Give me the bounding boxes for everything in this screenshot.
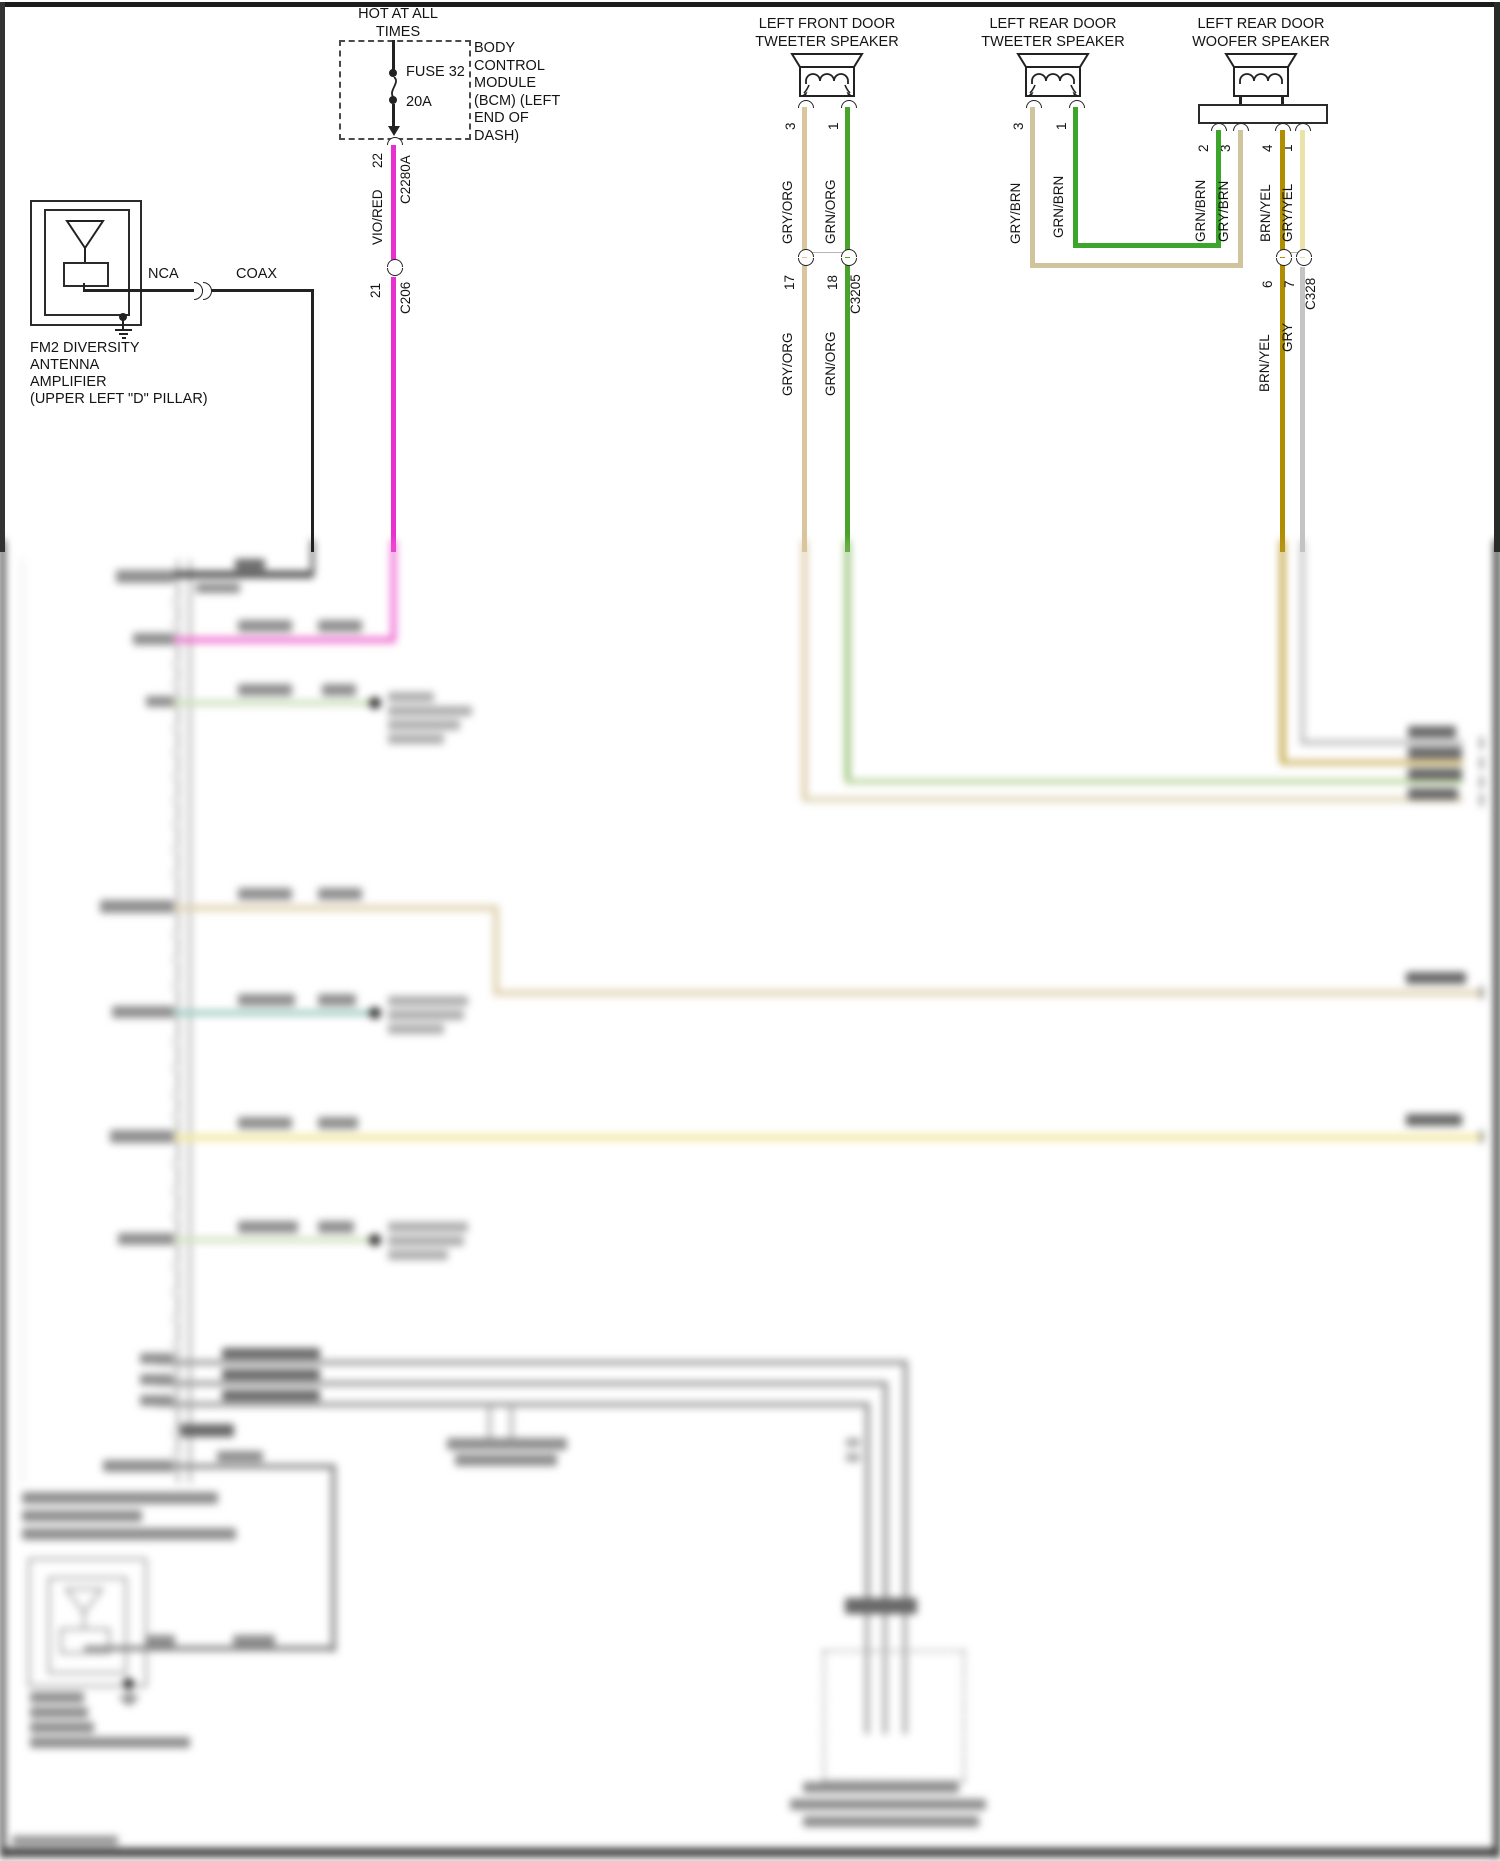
- blurred-note-line1: [447, 1438, 567, 1450]
- blurred-coax-label: [233, 1635, 275, 1646]
- blurred-circuit-label: [318, 1221, 354, 1233]
- blurred-splice-note-line2: [388, 1236, 464, 1246]
- splice-dot-3: [369, 1234, 381, 1246]
- blurred-edge-label-2: [1408, 747, 1462, 759]
- blurred-mark: [846, 1438, 860, 1447]
- gray-row-a: [156, 1360, 908, 1365]
- coax-row-wire: [150, 571, 313, 578]
- blurred-connector-label: [180, 1424, 234, 1437]
- gray-row-a-vertical: [903, 1360, 908, 1600]
- blurred-wire-label: [238, 620, 292, 632]
- blurred-circuit-label: [318, 1117, 358, 1129]
- blurred-wire-label: [222, 1348, 320, 1359]
- blurred-edge-label-6: [1406, 1114, 1462, 1126]
- edge-tick-2: [1480, 757, 1483, 769]
- blurred-label: [196, 583, 240, 593]
- wiring-diagram-page: HOT AT ALL TIMES FUSE 32 20A BODY CONTRO…: [0, 0, 1500, 1861]
- blurred-pin-label: [140, 1353, 174, 1364]
- amp-dashed-box: [823, 1650, 965, 1782]
- blurred-antenna-caption-line3: [30, 1722, 94, 1733]
- grn-org-feed-horizontal: [845, 779, 1463, 784]
- yellow-row-wire: [156, 1134, 1484, 1141]
- blurred-wire-label: [238, 1221, 298, 1233]
- blurred-pin-label: [100, 900, 174, 913]
- blurred-circuit-label: [318, 994, 356, 1006]
- blurred-splice-note-line3: [388, 1250, 448, 1260]
- splice-dot-2: [369, 1007, 381, 1019]
- blurred-pin-label: [116, 570, 174, 583]
- gry-org-feed-horizontal: [802, 797, 1463, 802]
- palegreen-row-wire: [156, 1237, 378, 1243]
- brn-yel-feed-horizontal: [1280, 760, 1463, 765]
- blurred-splice-note-line1: [388, 996, 468, 1006]
- lower-antenna-row-wire: [156, 1464, 336, 1469]
- blurred-splice-note-line2: [388, 1010, 464, 1020]
- splice-dot-1: [369, 697, 381, 709]
- gray-row-b: [156, 1381, 888, 1386]
- lower-antenna-vertical: [331, 1464, 336, 1652]
- radio-strip-right-line: [189, 560, 191, 1483]
- blurred-amp-caption-line3: [803, 1816, 979, 1827]
- page-border-right-blur: [1494, 540, 1500, 1858]
- blurred-edge-label-4: [1408, 788, 1458, 800]
- blurred-pin-label: [146, 696, 174, 707]
- blurred-circuit-label: [322, 684, 356, 696]
- blurred-pin-label: [140, 1374, 174, 1385]
- shield-drop-2: [510, 1405, 513, 1438]
- gry-org-wire-blur: [802, 540, 807, 801]
- blurred-amp-caption-line2: [790, 1799, 986, 1810]
- shield-drop-1: [488, 1405, 491, 1438]
- lower-antenna-icon: [62, 1586, 106, 1628]
- blurred-antenna-caption-line1: [30, 1692, 84, 1703]
- vio-red-wire-blur: [391, 540, 396, 642]
- blurred-wire-label: [222, 1390, 320, 1401]
- edge-tick-6: [1480, 1130, 1483, 1143]
- blurred-pin-label: [112, 1006, 174, 1018]
- tan-row-vertical: [493, 905, 499, 995]
- lower-antenna-ground-bar1: [120, 1696, 138, 1699]
- blurred-antenna-caption-line2: [30, 1707, 88, 1718]
- brn-yel-wire-blur: [1280, 540, 1285, 765]
- blurred-circuit-label: [318, 888, 362, 900]
- blurred-wire-label: [222, 1369, 320, 1380]
- radio-connector-pins: [172, 0, 180, 1861]
- blurred-amp-caption-line1: [803, 1782, 959, 1793]
- blurred-amp-connector: [845, 1598, 917, 1614]
- blurred-copyright-text: [12, 1836, 118, 1845]
- blurred-pin-label: [140, 1395, 174, 1406]
- edge-tick-5: [1480, 986, 1483, 999]
- blurred-pin-label: [118, 1233, 174, 1245]
- blurred-circuit-label: [318, 620, 362, 632]
- page-border-left-blur: [0, 540, 5, 1858]
- grn-org-wire-blur: [845, 540, 850, 783]
- blurred-splice-note-line1: [388, 1222, 468, 1232]
- blurred-wire-label: [238, 684, 292, 696]
- page-border-bottom: [0, 1848, 1500, 1857]
- blurred-ground-note-line3: [388, 720, 460, 730]
- blurred-wire-label: [238, 1117, 292, 1129]
- blurred-connector-label: [235, 559, 265, 570]
- blurred-antenna-caption-line4: [30, 1737, 190, 1748]
- gray-row-c-vertical: [865, 1402, 870, 1600]
- blurred-edge-label-3: [1408, 768, 1462, 780]
- blurred-pin-label: [133, 633, 174, 645]
- blurred-pin-label: [110, 1130, 174, 1143]
- blurred-nca-label: [147, 1635, 175, 1646]
- gray-row-b-vertical: [883, 1381, 888, 1600]
- lower-antenna-ground-bar2: [124, 1701, 134, 1704]
- blurred-edge-label-1: [1408, 726, 1456, 738]
- edge-tick-4: [1480, 794, 1483, 806]
- blurred-wire-label: [217, 1451, 263, 1462]
- blurred-wire-label: [238, 888, 292, 900]
- gray-row-c: [156, 1402, 870, 1407]
- tan-row-wire: [156, 905, 498, 911]
- blurred-mark: [846, 1453, 860, 1462]
- blurred-radio-caption-line2: [22, 1510, 142, 1522]
- teal-row-wire: [156, 1010, 378, 1016]
- edge-tick-1: [1480, 737, 1483, 749]
- blurred-ground-note-line1: [388, 692, 434, 702]
- blurred-wire-label: [238, 994, 295, 1006]
- blurred-ground-note-line2: [388, 706, 472, 716]
- edge-tick-3: [1480, 776, 1483, 788]
- blurred-edge-label-5: [1406, 972, 1466, 984]
- ground-row-wire-1: [156, 700, 378, 706]
- blurred-splice-note-line3: [388, 1024, 444, 1034]
- tan-row-horizontal-long: [493, 990, 1484, 996]
- blurred-pin-label: [103, 1460, 173, 1472]
- faint-module-edge: [21, 560, 23, 1482]
- lower-antenna-wire: [84, 1646, 336, 1651]
- lower-antenna-ground-stem: [128, 1688, 130, 1696]
- blurred-radio-caption-line3: [22, 1528, 236, 1540]
- blurred-ground-note-line4: [388, 734, 444, 744]
- blurred-diagram-layer: [0, 0, 1500, 1861]
- gry-wire-blur: [1300, 540, 1305, 744]
- blurred-radio-caption-line1: [22, 1492, 218, 1504]
- blurred-note-line2: [455, 1454, 557, 1466]
- vio-red-row-wire: [156, 637, 396, 643]
- gry-feed-horizontal: [1300, 740, 1463, 745]
